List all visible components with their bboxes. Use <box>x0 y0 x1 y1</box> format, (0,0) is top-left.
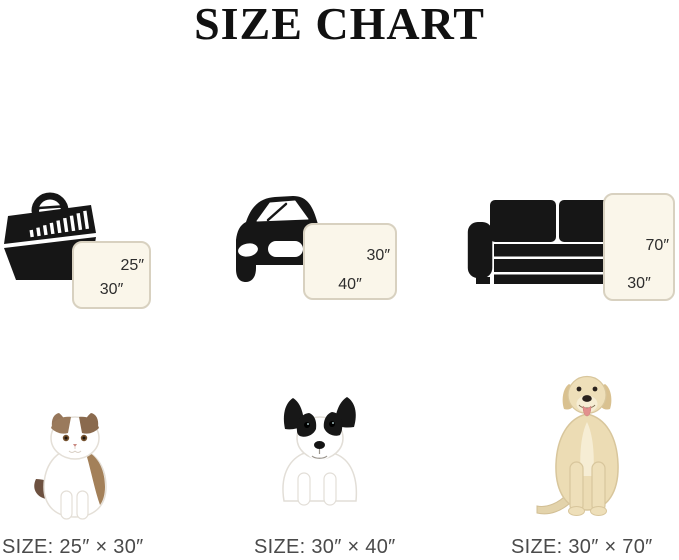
size-chart-infographic: SIZE CHART 25″ 30″ <box>0 0 679 560</box>
pad-medium-side-dimension: 30″ <box>367 248 390 264</box>
pad-large-side-dimension: 70″ <box>646 238 669 254</box>
cat-photo <box>33 413 117 523</box>
pad-small-side-dimension: 25″ <box>121 258 144 274</box>
pad-medium: 30″ 40″ <box>303 223 397 300</box>
size-label-large: SIZE: 30″ × 70″ <box>511 536 653 558</box>
french-bulldog-photo <box>272 397 367 509</box>
pad-medium-bottom-dimension: 40″ <box>338 277 361 293</box>
size-label-medium: SIZE: 30″ × 40″ <box>254 536 396 558</box>
pad-large-bottom-dimension: 30″ <box>627 276 650 292</box>
size-label-small: SIZE: 25″ × 30″ <box>2 536 144 558</box>
labrador-photo <box>535 372 640 519</box>
pad-large: 70″ 30″ <box>603 193 675 301</box>
sofa-icon <box>467 199 615 285</box>
page-title: SIZE CHART <box>0 1 679 47</box>
pad-small: 25″ 30″ <box>72 241 151 309</box>
pad-small-bottom-dimension: 30″ <box>100 282 123 298</box>
